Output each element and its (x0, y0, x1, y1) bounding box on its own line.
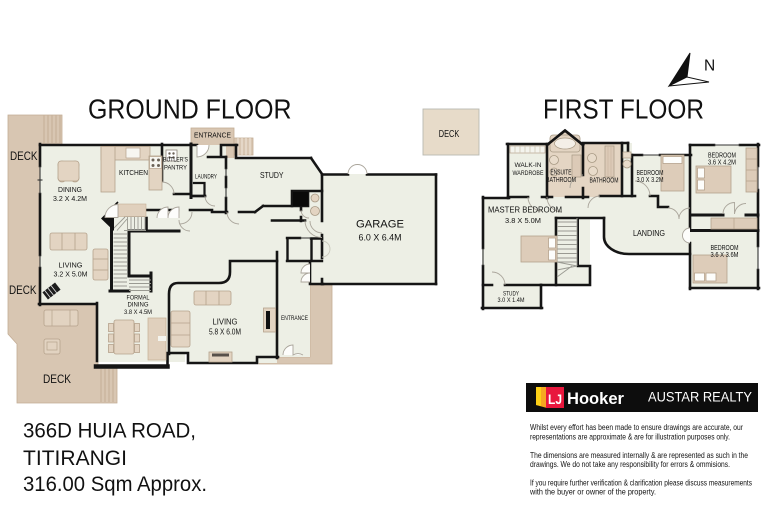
svg-text:BATHROOM: BATHROOM (546, 177, 576, 184)
svg-text:LJ: LJ (548, 391, 562, 407)
svg-text:with the buyer or owner of the: with the buyer or owner of the property. (529, 487, 656, 497)
svg-text:DECK: DECK (439, 129, 460, 140)
svg-text:316.00 Sqm Approx.: 316.00 Sqm Approx. (23, 472, 207, 496)
svg-text:BEDROOM: BEDROOM (711, 245, 739, 252)
svg-text:LIVING: LIVING (213, 318, 238, 327)
svg-text:Whilst every effort has been m: Whilst every effort has been made to ens… (530, 422, 743, 432)
svg-text:MASTER BEDROOM: MASTER BEDROOM (488, 206, 562, 215)
svg-text:WALK-IN: WALK-IN (515, 162, 542, 169)
svg-text:6.0 X 6.4M: 6.0 X 6.4M (359, 233, 402, 243)
svg-text:ENTRANCE: ENTRANCE (281, 315, 308, 322)
svg-text:3.8 X 4.5M: 3.8 X 4.5M (124, 309, 152, 316)
svg-text:FORMAL: FORMAL (127, 295, 150, 302)
svg-text:WARDROBE: WARDROBE (513, 170, 545, 177)
svg-text:3.6 X 4.2M: 3.6 X 4.2M (708, 160, 736, 167)
svg-text:3.0 X 3.2M: 3.0 X 3.2M (637, 177, 664, 184)
svg-text:LAUNDRY: LAUNDRY (195, 174, 217, 181)
svg-text:LIVING: LIVING (59, 261, 83, 270)
svg-text:TITIRANGI: TITIRANGI (23, 446, 127, 470)
svg-text:5.8 X 6.0M: 5.8 X 6.0M (209, 328, 241, 337)
svg-text:BATHROOM: BATHROOM (590, 178, 619, 185)
svg-text:KITCHEN: KITCHEN (119, 168, 148, 177)
svg-text:DECK: DECK (43, 372, 71, 386)
svg-text:3.6 X 3.6M: 3.6 X 3.6M (711, 252, 739, 259)
svg-text:LANDING: LANDING (633, 229, 665, 238)
svg-text:3.2 X 5.0M: 3.2 X 5.0M (54, 270, 88, 279)
svg-text:ENTRANCE: ENTRANCE (194, 131, 231, 140)
svg-text:Hooker: Hooker (567, 389, 624, 408)
svg-text:BUTLER'S: BUTLER'S (163, 157, 188, 164)
svg-text:DINING: DINING (58, 185, 82, 194)
svg-text:366D HUIA ROAD,: 366D HUIA ROAD, (23, 419, 196, 443)
svg-text:ENSUITE: ENSUITE (551, 170, 572, 177)
svg-text:3.8 X 5.0M: 3.8 X 5.0M (505, 216, 541, 225)
svg-text:3.2 X 4.2M: 3.2 X 4.2M (53, 194, 87, 203)
svg-text:STUDY: STUDY (503, 292, 519, 298)
svg-text:DECK: DECK (9, 283, 37, 297)
svg-text:representations are approximat: representations are approximate & are fo… (530, 432, 730, 442)
svg-text:STUDY: STUDY (260, 171, 284, 180)
svg-text:BEDROOM: BEDROOM (637, 170, 664, 177)
svg-text:3.0 X 1.4M: 3.0 X 1.4M (498, 298, 525, 304)
svg-text:PANTRY: PANTRY (164, 165, 188, 172)
svg-text:DECK: DECK (10, 149, 38, 163)
svg-text:FIRST FLOOR: FIRST FLOOR (543, 94, 704, 125)
svg-text:GARAGE: GARAGE (356, 219, 404, 231)
svg-text:BEDROOM: BEDROOM (708, 153, 736, 160)
svg-text:GROUND FLOOR: GROUND FLOOR (88, 94, 292, 125)
svg-text:drawings. We do not take any r: drawings. We do not take any responsibil… (530, 459, 730, 469)
svg-text:N: N (704, 58, 715, 75)
svg-text:DINING: DINING (128, 302, 149, 309)
svg-text:AUSTAR REALTY: AUSTAR REALTY (648, 390, 752, 405)
